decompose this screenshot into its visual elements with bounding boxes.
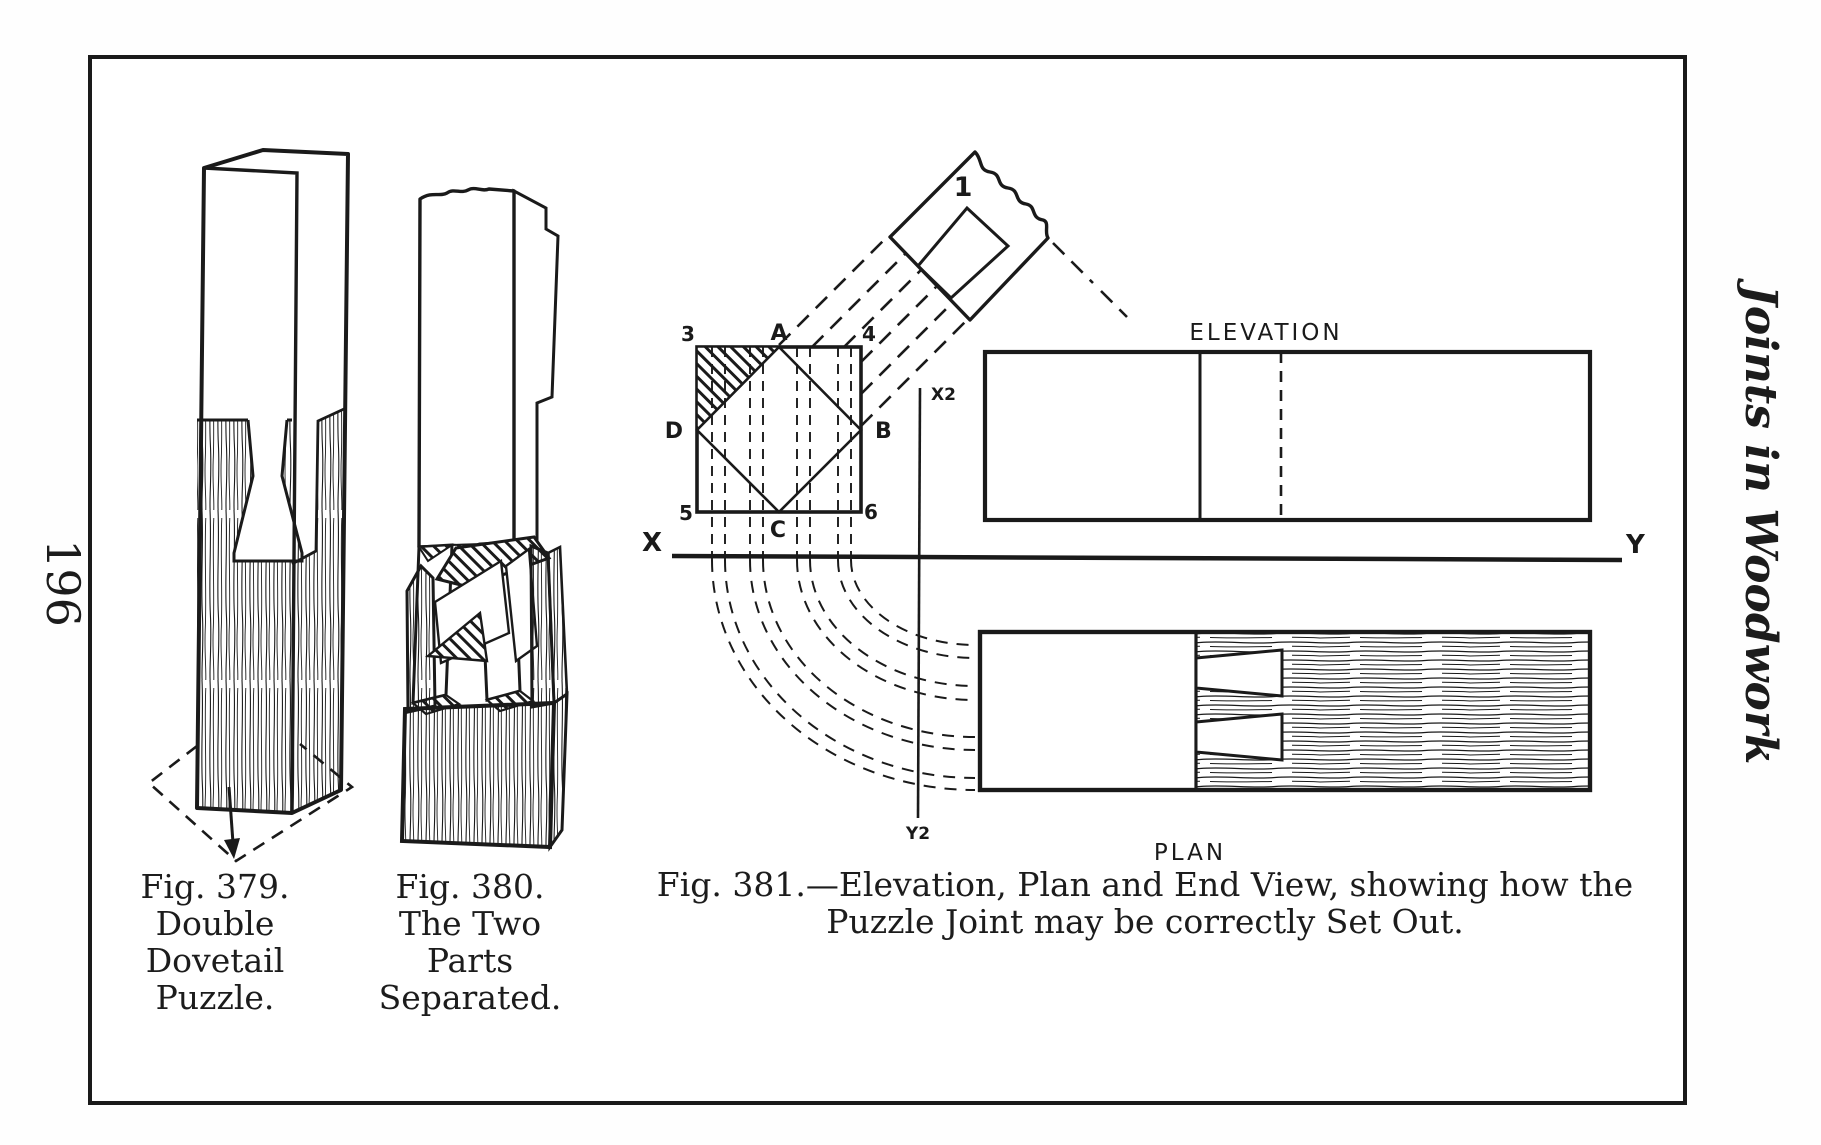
label-plan: PLAN <box>1154 840 1226 866</box>
caption-line: Double <box>95 905 335 942</box>
label-y: Y <box>1625 530 1646 560</box>
caption-line: Dovetail <box>95 942 335 979</box>
arc-projection-dashes <box>712 560 975 790</box>
page-number: 196 <box>36 521 90 645</box>
plan-dovetail-pin-bottom <box>1196 714 1282 760</box>
label-elevation: ELEVATION <box>1189 320 1342 346</box>
label-corner-3: 3 <box>681 322 695 346</box>
running-head: Joints in Woodwork <box>1731 285 1789 745</box>
plan-view: PLAN <box>980 632 1590 866</box>
xy-ground-line: X Y <box>642 528 1646 560</box>
tilted-piece: 1 <box>890 152 1048 320</box>
caption-line: Parts <box>350 942 590 979</box>
caption-line: The Two <box>350 905 590 942</box>
fig380-caption: Fig. 380. The Two Parts Separated. <box>350 868 590 1016</box>
caption-line: Separated. <box>350 979 590 1016</box>
lower-part <box>402 537 567 847</box>
label-point-a: A <box>770 321 787 346</box>
label-y2: Y2 <box>905 824 930 844</box>
label-point-d: D <box>665 419 683 444</box>
plan-dovetail-pin-top <box>1196 650 1282 696</box>
caption-line: Puzzle Joint may be correctly Set Out. <box>615 903 1675 940</box>
caption-line: Fig. 381.—Elevation, Plan and End View, … <box>615 866 1675 903</box>
fig381-caption: Fig. 381.—Elevation, Plan and End View, … <box>615 866 1675 940</box>
fig381-drawing: X Y X2 Y2 3 4 5 6 A B C D <box>615 120 1685 880</box>
label-point-c: C <box>770 518 786 543</box>
elevation-view: ELEVATION <box>985 320 1590 520</box>
caption-line: Puzzle. <box>95 979 335 1016</box>
label-corner-6: 6 <box>864 500 878 524</box>
fig379-drawing <box>120 130 420 875</box>
label-corner-5: 5 <box>679 501 693 525</box>
label-point-b: B <box>875 419 892 444</box>
caption-line: Fig. 379. <box>95 868 335 905</box>
label-piece-1: 1 <box>954 172 973 203</box>
fig379-caption: Fig. 379. Double Dovetail Puzzle. <box>95 868 335 1016</box>
label-x2: X2 <box>931 385 956 405</box>
end-view: 3 4 5 6 A B C D <box>665 321 892 560</box>
label-x: X <box>642 528 662 558</box>
caption-line: Fig. 380. <box>350 868 590 905</box>
